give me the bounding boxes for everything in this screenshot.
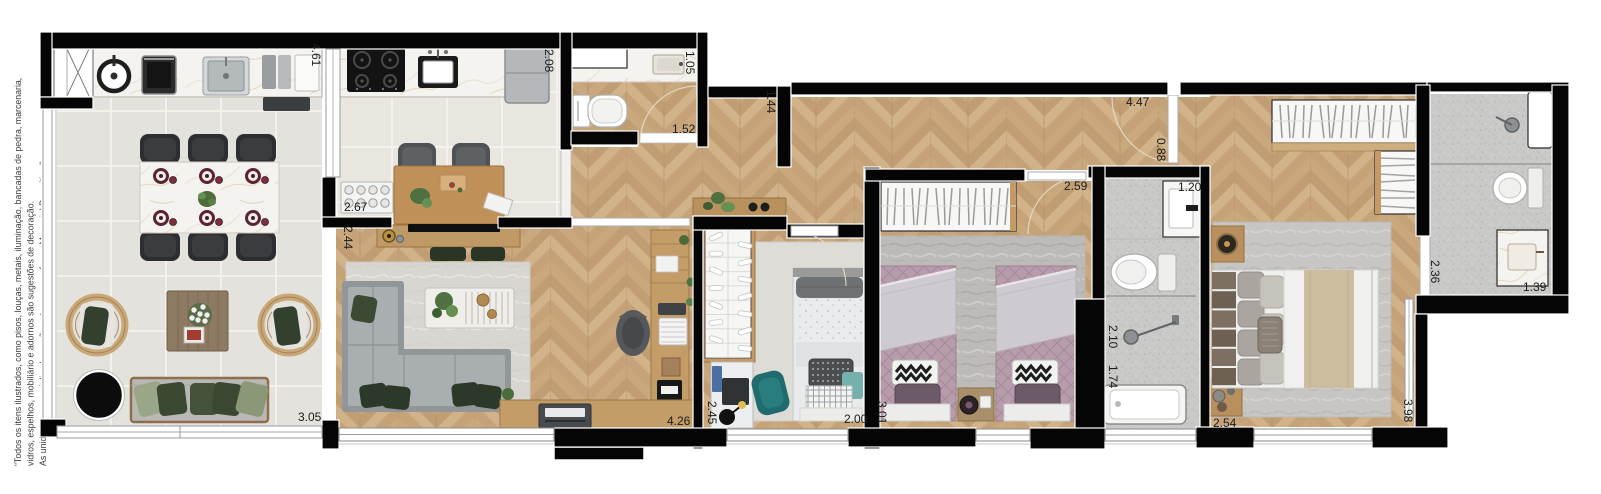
svg-text:4.26: 4.26 — [667, 414, 691, 428]
svg-text:1.20: 1.20 — [1178, 180, 1202, 194]
svg-text:2.44: 2.44 — [341, 226, 355, 250]
svg-text:1.39: 1.39 — [1523, 280, 1547, 294]
svg-text:2.08: 2.08 — [542, 49, 556, 73]
svg-text:3.98: 3.98 — [1401, 399, 1415, 423]
svg-text:2.67: 2.67 — [344, 200, 368, 214]
svg-text:2.59: 2.59 — [1064, 179, 1088, 193]
svg-text:3.01: 3.01 — [875, 401, 889, 425]
svg-text:2.45: 2.45 — [705, 401, 719, 425]
svg-text:1.74: 1.74 — [1106, 365, 1120, 389]
svg-text:4.47: 4.47 — [1126, 95, 1150, 109]
svg-text:1.44: 1.44 — [764, 90, 778, 114]
svg-text:2.00: 2.00 — [844, 412, 868, 426]
svg-text:0.88: 0.88 — [1154, 138, 1168, 162]
svg-text:4.61: 4.61 — [309, 43, 323, 67]
svg-text:“Todos os itens ilustrados, co: “Todos os itens ilustrados, como pisos, … — [13, 78, 23, 466]
svg-text:2.54: 2.54 — [1213, 416, 1237, 430]
svg-text:3.05: 3.05 — [298, 410, 322, 424]
svg-text:vidros, espelhos, mobiliário e: vidros, espelhos, mobiliário e adornos s… — [26, 201, 36, 466]
svg-text:2.36: 2.36 — [1428, 260, 1442, 284]
svg-text:2.10: 2.10 — [1106, 325, 1120, 349]
svg-text:1.05: 1.05 — [683, 51, 697, 75]
svg-text:1.52: 1.52 — [672, 122, 696, 136]
